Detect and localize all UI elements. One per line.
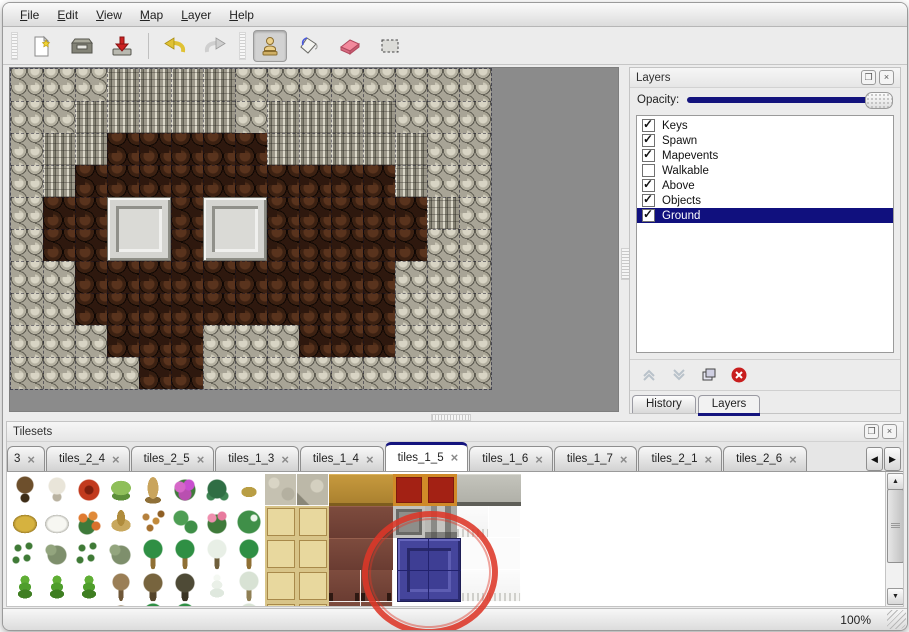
- map-tile-floor[interactable]: [267, 229, 299, 261]
- map-tile-rock[interactable]: [395, 293, 427, 325]
- tileset-tile-tatami-tile[interactable]: [265, 538, 297, 570]
- tileset-tile-gnarled-tree[interactable]: [105, 602, 137, 606]
- tileset-tile-gray-beams[interactable]: [425, 506, 457, 538]
- map-tile-floor[interactable]: [363, 197, 395, 229]
- map-tile-floor[interactable]: [235, 261, 267, 293]
- layer-row-above[interactable]: Above: [637, 178, 893, 193]
- map-tile-rock[interactable]: [11, 325, 43, 357]
- map-tile-rock[interactable]: [427, 101, 459, 133]
- close-panel-icon[interactable]: ×: [879, 70, 894, 85]
- toolbar-drag-handle[interactable]: [239, 32, 246, 60]
- tileset-tile-white-curtain[interactable]: [489, 538, 521, 570]
- map-tile-floor[interactable]: [43, 197, 75, 229]
- opacity-slider-track[interactable]: [687, 97, 891, 103]
- map-tile-floor[interactable]: [203, 293, 235, 325]
- map-tile-cliff[interactable]: [331, 101, 363, 133]
- map-tile-rock[interactable]: [11, 133, 43, 165]
- map-tile-floor[interactable]: [75, 261, 107, 293]
- map-tile-cliff[interactable]: [395, 165, 427, 197]
- tileset-tile-empty[interactable]: [425, 602, 457, 606]
- map-tile-floor[interactable]: [139, 261, 171, 293]
- map-tile-rock[interactable]: [235, 69, 267, 101]
- stone-block-object[interactable]: [107, 197, 171, 261]
- tileset-tile-maroon-table-legs[interactable]: [329, 570, 361, 602]
- close-tab-icon[interactable]: ×: [620, 453, 628, 466]
- map-tile-rock[interactable]: [363, 357, 395, 389]
- tileset-tile-snow-pine[interactable]: [201, 570, 233, 602]
- map-tile-rock[interactable]: [459, 133, 491, 165]
- blue-block-tile[interactable]: [397, 538, 461, 602]
- map-tile-rock[interactable]: [11, 293, 43, 325]
- map-tile-floor[interactable]: [107, 133, 139, 165]
- tileset-tile-gray-frame-block[interactable]: [393, 506, 425, 538]
- map-tile-rock[interactable]: [331, 357, 363, 389]
- tileset-tab-tiles_2_1[interactable]: tiles_2_1×: [638, 446, 722, 471]
- tileset-tile-maroon-table[interactable]: [329, 538, 361, 570]
- scroll-down-icon[interactable]: ▼: [887, 588, 903, 605]
- map-tile-cliff[interactable]: [203, 101, 235, 133]
- menu-view[interactable]: View: [87, 5, 131, 25]
- map-tile-rock[interactable]: [11, 197, 43, 229]
- map-tile-floor[interactable]: [235, 293, 267, 325]
- tileset-tile-red-flower[interactable]: [73, 474, 105, 506]
- tileset-tile-palm-tree[interactable]: [137, 538, 169, 570]
- redo-button[interactable]: [198, 30, 232, 62]
- map-tile-floor[interactable]: [107, 325, 139, 357]
- tileset-tile-empty[interactable]: [521, 538, 553, 570]
- tileset-tile-tan-trunk[interactable]: [137, 474, 169, 506]
- map-tile-floor[interactable]: [171, 325, 203, 357]
- layer-row-ground[interactable]: Ground: [637, 208, 893, 223]
- tileset-tile-tatami-tile[interactable]: [265, 602, 297, 606]
- tileset-tile-sprouts[interactable]: [9, 538, 41, 570]
- map-tile-floor[interactable]: [395, 229, 427, 261]
- tileset-tile-large-lily-pad[interactable]: [233, 506, 265, 538]
- tileset-tile-empty[interactable]: [521, 506, 553, 538]
- horizontal-splitter[interactable]: [431, 414, 471, 421]
- tileset-tile-empty[interactable]: [457, 602, 489, 606]
- tileset-tile-purple-flowers[interactable]: [169, 474, 201, 506]
- map-canvas[interactable]: [9, 67, 619, 412]
- scroll-tabs-right-icon[interactable]: ▶: [884, 447, 901, 471]
- map-tile-cliff[interactable]: [363, 133, 395, 165]
- opacity-slider-thumb[interactable]: [865, 92, 893, 109]
- tileset-content[interactable]: ▲ ▼: [7, 472, 903, 606]
- map-tile-floor[interactable]: [299, 165, 331, 197]
- map-tile-floor[interactable]: [331, 325, 363, 357]
- tileset-tile-snowy-tree[interactable]: [201, 538, 233, 570]
- map-tile-rock[interactable]: [43, 325, 75, 357]
- map-tile-rock[interactable]: [395, 101, 427, 133]
- tileset-tile-empty[interactable]: [393, 602, 425, 606]
- tileset-tile-white-curtain[interactable]: [489, 506, 521, 538]
- close-tab-icon[interactable]: ×: [535, 453, 543, 466]
- map-tile-rock[interactable]: [395, 69, 427, 101]
- open-button[interactable]: [65, 30, 99, 62]
- map-tile-floor[interactable]: [171, 293, 203, 325]
- map-tile-rock[interactable]: [459, 197, 491, 229]
- map-tile-rock[interactable]: [235, 101, 267, 133]
- map-tile-floor[interactable]: [331, 165, 363, 197]
- tileset-tile-palm-tree[interactable]: [233, 538, 265, 570]
- tileset-tile-white-curtain[interactable]: [457, 538, 489, 570]
- map-tile-floor[interactable]: [75, 165, 107, 197]
- map-tile-cliff[interactable]: [363, 101, 395, 133]
- map-tile-rock[interactable]: [427, 165, 459, 197]
- layer-visibility-checkbox[interactable]: [642, 209, 655, 222]
- stamp-tool-button[interactable]: [253, 30, 287, 62]
- scroll-tabs-left-icon[interactable]: ◀: [866, 447, 883, 471]
- tileset-tab-tiles_2_6[interactable]: tiles_2_6×: [723, 446, 807, 471]
- tileset-tile-dark-tree[interactable]: [9, 474, 41, 506]
- map-tile-cliff[interactable]: [171, 69, 203, 101]
- tileset-tile-palm-tree[interactable]: [169, 538, 201, 570]
- tileset-tile-curtain-fringe[interactable]: [457, 506, 489, 538]
- close-panel-icon[interactable]: ×: [882, 424, 897, 439]
- tileset-tile-bare-tree[interactable]: [105, 570, 137, 602]
- tileset-tab-tiles_2_4[interactable]: tiles_2_4×: [46, 446, 130, 471]
- map-tile-floor[interactable]: [267, 261, 299, 293]
- map-tile-cliff[interactable]: [139, 101, 171, 133]
- map-tile-rock[interactable]: [427, 229, 459, 261]
- map-tile-floor[interactable]: [299, 293, 331, 325]
- map-tile-floor[interactable]: [171, 165, 203, 197]
- close-tab-icon[interactable]: ×: [281, 453, 289, 466]
- map-tile-floor[interactable]: [203, 133, 235, 165]
- menu-file[interactable]: File: [11, 5, 48, 25]
- map-tile-floor[interactable]: [331, 197, 363, 229]
- map-tile-floor[interactable]: [267, 293, 299, 325]
- close-tab-icon[interactable]: ×: [197, 453, 205, 466]
- tileset-tile-maroon-table-legs[interactable]: [329, 602, 361, 606]
- map-tile-floor[interactable]: [171, 229, 203, 261]
- tileset-tile-sprouts[interactable]: [73, 538, 105, 570]
- map-tile-floor[interactable]: [139, 357, 171, 389]
- tileset-tile-white-tree[interactable]: [41, 474, 73, 506]
- map-tile-rock[interactable]: [427, 293, 459, 325]
- tileset-grid[interactable]: [9, 474, 553, 606]
- layer-row-mapevents[interactable]: Mapevents: [637, 148, 893, 163]
- map-tile-rock[interactable]: [395, 261, 427, 293]
- map-tile-rock[interactable]: [459, 261, 491, 293]
- map-tile-rock[interactable]: [427, 357, 459, 389]
- fill-tool-button[interactable]: [293, 30, 327, 62]
- map-tile-rock[interactable]: [235, 357, 267, 389]
- layer-visibility-checkbox[interactable]: [642, 164, 655, 177]
- tileset-tile-gray-tile[interactable]: [489, 474, 521, 506]
- map-tile-rock[interactable]: [11, 261, 43, 293]
- map-tile-rock[interactable]: [43, 69, 75, 101]
- map-tile-floor[interactable]: [363, 229, 395, 261]
- stone-block-object[interactable]: [203, 197, 267, 261]
- map-tile-floor[interactable]: [75, 229, 107, 261]
- float-panel-icon[interactable]: ❐: [861, 70, 876, 85]
- map-tile-cliff[interactable]: [43, 165, 75, 197]
- map-tile-floor[interactable]: [299, 197, 331, 229]
- tileset-tab-tiles_1_7[interactable]: tiles_1_7×: [554, 446, 638, 471]
- close-tab-icon[interactable]: ×: [451, 451, 459, 464]
- map-tile-rock[interactable]: [331, 69, 363, 101]
- tileset-tab-3[interactable]: 3×: [7, 446, 45, 471]
- map-tile-rock[interactable]: [427, 133, 459, 165]
- undo-button[interactable]: [158, 30, 192, 62]
- tileset-scrollbar[interactable]: ▲ ▼: [885, 472, 903, 606]
- new-file-button[interactable]: [25, 30, 59, 62]
- tab-history[interactable]: History: [632, 395, 696, 413]
- map-tile-rock[interactable]: [11, 165, 43, 197]
- map-tile-rock[interactable]: [43, 357, 75, 389]
- opacity-slider[interactable]: [687, 92, 893, 108]
- map-tile-rock[interactable]: [11, 101, 43, 133]
- map-tile-rock[interactable]: [363, 69, 395, 101]
- map-tile-cliff[interactable]: [203, 69, 235, 101]
- map-tile-cliff[interactable]: [331, 133, 363, 165]
- map-tile-floor[interactable]: [171, 261, 203, 293]
- map-tile-rock[interactable]: [11, 229, 43, 261]
- map-tile-rock[interactable]: [267, 357, 299, 389]
- tileset-tile-tatami-tile[interactable]: [265, 570, 297, 602]
- tileset-tile-leaves[interactable]: [137, 506, 169, 538]
- tileset-tile-maroon-table[interactable]: [329, 506, 361, 538]
- map-tile-floor[interactable]: [139, 165, 171, 197]
- map-tile-floor[interactable]: [139, 293, 171, 325]
- map-tile-cliff[interactable]: [267, 133, 299, 165]
- map-tile-floor[interactable]: [267, 197, 299, 229]
- tileset-tile-rose-bush[interactable]: [201, 506, 233, 538]
- menu-layer[interactable]: Layer: [172, 5, 220, 25]
- tileset-tab-tiles_1_5[interactable]: tiles_1_5×: [385, 442, 469, 471]
- tileset-tile-tatami-tile[interactable]: [297, 506, 329, 538]
- rect-select-tool-button[interactable]: [373, 30, 407, 62]
- map-tile-cliff[interactable]: [75, 133, 107, 165]
- save-button[interactable]: [105, 30, 139, 62]
- map-tile-floor[interactable]: [299, 229, 331, 261]
- map-tile-floor[interactable]: [75, 197, 107, 229]
- menu-map[interactable]: Map: [131, 5, 172, 25]
- map-tile-floor[interactable]: [363, 261, 395, 293]
- layer-row-keys[interactable]: Keys: [637, 118, 893, 133]
- map-tile-rock[interactable]: [459, 229, 491, 261]
- menu-edit[interactable]: Edit: [48, 5, 87, 25]
- map-tile-cliff[interactable]: [395, 133, 427, 165]
- layer-row-spawn[interactable]: Spawn: [637, 133, 893, 148]
- tileset-tile-conifer[interactable]: [41, 570, 73, 602]
- tileset-tile-hay-mound[interactable]: [9, 506, 41, 538]
- map-tile-rock[interactable]: [267, 325, 299, 357]
- tileset-tile-conifer[interactable]: [9, 602, 41, 606]
- map-tile-floor[interactable]: [363, 293, 395, 325]
- map-tile-rock[interactable]: [11, 69, 43, 101]
- tileset-tile-maroon-table[interactable]: [361, 506, 393, 538]
- map-tile-floor[interactable]: [235, 165, 267, 197]
- tileset-tile-fern[interactable]: [201, 474, 233, 506]
- delete-layer-button[interactable]: [726, 363, 752, 387]
- map-tile-cliff[interactable]: [171, 101, 203, 133]
- close-tab-icon[interactable]: ×: [112, 453, 120, 466]
- map-tile-rock[interactable]: [203, 325, 235, 357]
- map-tile-floor[interactable]: [331, 293, 363, 325]
- eraser-tool-button[interactable]: [333, 30, 367, 62]
- map-tile-floor[interactable]: [203, 261, 235, 293]
- map-tile-rock[interactable]: [43, 101, 75, 133]
- map-grid[interactable]: [11, 69, 491, 389]
- map-tile-cliff[interactable]: [139, 69, 171, 101]
- map-tile-floor[interactable]: [331, 261, 363, 293]
- map-tile-rock[interactable]: [203, 357, 235, 389]
- map-tile-rock[interactable]: [43, 261, 75, 293]
- map-tile-rock[interactable]: [75, 325, 107, 357]
- close-tab-icon[interactable]: ×: [705, 453, 713, 466]
- resize-grip[interactable]: [887, 610, 906, 629]
- tileset-tab-tiles_1_3[interactable]: tiles_1_3×: [215, 446, 299, 471]
- tileset-tile-tatami-tile[interactable]: [297, 602, 329, 606]
- toolbar-drag-handle[interactable]: [11, 32, 18, 60]
- tileset-tile-empty[interactable]: [521, 570, 553, 602]
- map-tile-floor[interactable]: [299, 325, 331, 357]
- layer-visibility-checkbox[interactable]: [642, 179, 655, 192]
- tileset-tile-orange-flowers[interactable]: [73, 506, 105, 538]
- map-tile-floor[interactable]: [171, 197, 203, 229]
- map-tile-cliff[interactable]: [107, 101, 139, 133]
- tileset-tile-green-stump[interactable]: [105, 474, 137, 506]
- layer-visibility-checkbox[interactable]: [642, 149, 655, 162]
- map-tile-rock[interactable]: [299, 69, 331, 101]
- tileset-tile-conifer[interactable]: [73, 570, 105, 602]
- close-tab-icon[interactable]: ×: [789, 453, 797, 466]
- map-tile-floor[interactable]: [107, 293, 139, 325]
- tileset-tile-gray-tile[interactable]: [457, 474, 489, 506]
- menu-help[interactable]: Help: [220, 5, 263, 25]
- tileset-tile-snowy-palm[interactable]: [233, 570, 265, 602]
- tileset-tile-weed[interactable]: [233, 474, 265, 506]
- map-tile-floor[interactable]: [395, 197, 427, 229]
- tab-layers[interactable]: Layers: [698, 395, 761, 413]
- map-tile-cliff[interactable]: [299, 133, 331, 165]
- tileset-tile-conifer[interactable]: [73, 602, 105, 606]
- map-tile-rock[interactable]: [459, 165, 491, 197]
- layer-visibility-checkbox[interactable]: [642, 134, 655, 147]
- map-tile-rock[interactable]: [459, 357, 491, 389]
- tileset-tile-bush[interactable]: [41, 602, 73, 606]
- map-tile-cliff[interactable]: [299, 101, 331, 133]
- tileset-tile-dark-bush-tree[interactable]: [169, 570, 201, 602]
- map-tile-cliff[interactable]: [427, 197, 459, 229]
- map-tile-rock[interactable]: [459, 101, 491, 133]
- duplicate-layer-button[interactable]: [696, 363, 722, 387]
- tileset-tile-stone-tile[interactable]: [265, 474, 297, 506]
- tileset-tile-maroon-table-legs[interactable]: [361, 602, 393, 606]
- map-tile-rock[interactable]: [235, 325, 267, 357]
- tileset-tile-tan-wood-tile[interactable]: [361, 474, 393, 506]
- tileset-tab-tiles_1_4[interactable]: tiles_1_4×: [300, 446, 384, 471]
- tileset-tile-tatami-tile[interactable]: [265, 506, 297, 538]
- tileset-tile-palm-tree[interactable]: [169, 602, 201, 606]
- tileset-tile-palm-tree[interactable]: [137, 602, 169, 606]
- map-tile-floor[interactable]: [299, 261, 331, 293]
- tileset-tile-lily-pads[interactable]: [169, 506, 201, 538]
- map-tile-rock[interactable]: [427, 325, 459, 357]
- tileset-tile-empty[interactable]: [521, 602, 553, 606]
- map-tile-floor[interactable]: [139, 133, 171, 165]
- map-tile-rock[interactable]: [299, 357, 331, 389]
- map-tile-floor[interactable]: [235, 133, 267, 165]
- map-tile-floor[interactable]: [171, 133, 203, 165]
- close-tab-icon[interactable]: ×: [27, 453, 35, 466]
- tileset-tile-red-ornate-carpet[interactable]: [425, 474, 457, 506]
- close-tab-icon[interactable]: ×: [366, 453, 374, 466]
- map-tile-cliff[interactable]: [43, 133, 75, 165]
- tileset-tile-curtain-fringe[interactable]: [489, 570, 521, 602]
- layer-row-walkable[interactable]: Walkable: [637, 163, 893, 178]
- tileset-tile-maroon-table[interactable]: [361, 538, 393, 570]
- tileset-tab-tiles_1_6[interactable]: tiles_1_6×: [469, 446, 553, 471]
- map-tile-cliff[interactable]: [107, 69, 139, 101]
- scrollbar-thumb[interactable]: [887, 489, 903, 563]
- map-tile-rock[interactable]: [427, 261, 459, 293]
- tileset-tile-bush[interactable]: [105, 538, 137, 570]
- tileset-tile-maroon-table-legs[interactable]: [361, 570, 393, 602]
- tileset-tile-empty[interactable]: [521, 474, 553, 506]
- map-tile-floor[interactable]: [107, 165, 139, 197]
- tileset-tile-tatami-tile[interactable]: [297, 570, 329, 602]
- tileset-tile-red-ornate-carpet[interactable]: [393, 474, 425, 506]
- map-tile-floor[interactable]: [203, 165, 235, 197]
- layer-visibility-checkbox[interactable]: [642, 119, 655, 132]
- layer-visibility-checkbox[interactable]: [642, 194, 655, 207]
- tileset-tile-empty[interactable]: [489, 602, 521, 606]
- map-tile-floor[interactable]: [171, 357, 203, 389]
- map-tile-rock[interactable]: [107, 357, 139, 389]
- map-tile-rock[interactable]: [11, 357, 43, 389]
- map-tile-rock[interactable]: [395, 325, 427, 357]
- map-tile-cliff[interactable]: [75, 101, 107, 133]
- map-tile-rock[interactable]: [75, 69, 107, 101]
- float-panel-icon[interactable]: ❐: [864, 424, 879, 439]
- map-tile-rock[interactable]: [267, 69, 299, 101]
- scroll-up-icon[interactable]: ▲: [887, 473, 903, 490]
- tileset-tile-tatami-tile[interactable]: [297, 538, 329, 570]
- map-tile-rock[interactable]: [75, 357, 107, 389]
- tileset-tab-tiles_2_5[interactable]: tiles_2_5×: [131, 446, 215, 471]
- map-tile-floor[interactable]: [75, 293, 107, 325]
- map-tile-floor[interactable]: [267, 165, 299, 197]
- map-tile-cliff[interactable]: [267, 101, 299, 133]
- map-tile-floor[interactable]: [363, 165, 395, 197]
- map-tile-rock[interactable]: [395, 357, 427, 389]
- tileset-tile-tan-wood-tile[interactable]: [329, 474, 361, 506]
- tileset-tile-snow-pine[interactable]: [201, 602, 233, 606]
- map-tile-floor[interactable]: [107, 261, 139, 293]
- map-tile-floor[interactable]: [43, 229, 75, 261]
- map-tile-rock[interactable]: [43, 293, 75, 325]
- map-tile-rock[interactable]: [427, 69, 459, 101]
- map-tile-rock[interactable]: [459, 293, 491, 325]
- tileset-tile-snowy-palm[interactable]: [233, 602, 265, 606]
- map-tile-rock[interactable]: [459, 325, 491, 357]
- map-tile-floor[interactable]: [363, 325, 395, 357]
- tileset-tile-bush[interactable]: [41, 538, 73, 570]
- tileset-tile-curtain-fringe[interactable]: [457, 570, 489, 602]
- tileset-tile-conifer[interactable]: [9, 570, 41, 602]
- map-tile-floor[interactable]: [331, 229, 363, 261]
- tileset-tile-stone-corner-tile[interactable]: [297, 474, 329, 506]
- tileset-tile-dry-grass[interactable]: [105, 506, 137, 538]
- map-tile-rock[interactable]: [459, 69, 491, 101]
- layer-row-objects[interactable]: Objects: [637, 193, 893, 208]
- map-tile-floor[interactable]: [139, 325, 171, 357]
- tileset-tile-gnarled-tree[interactable]: [137, 570, 169, 602]
- tileset-tile-snow-mound[interactable]: [41, 506, 73, 538]
